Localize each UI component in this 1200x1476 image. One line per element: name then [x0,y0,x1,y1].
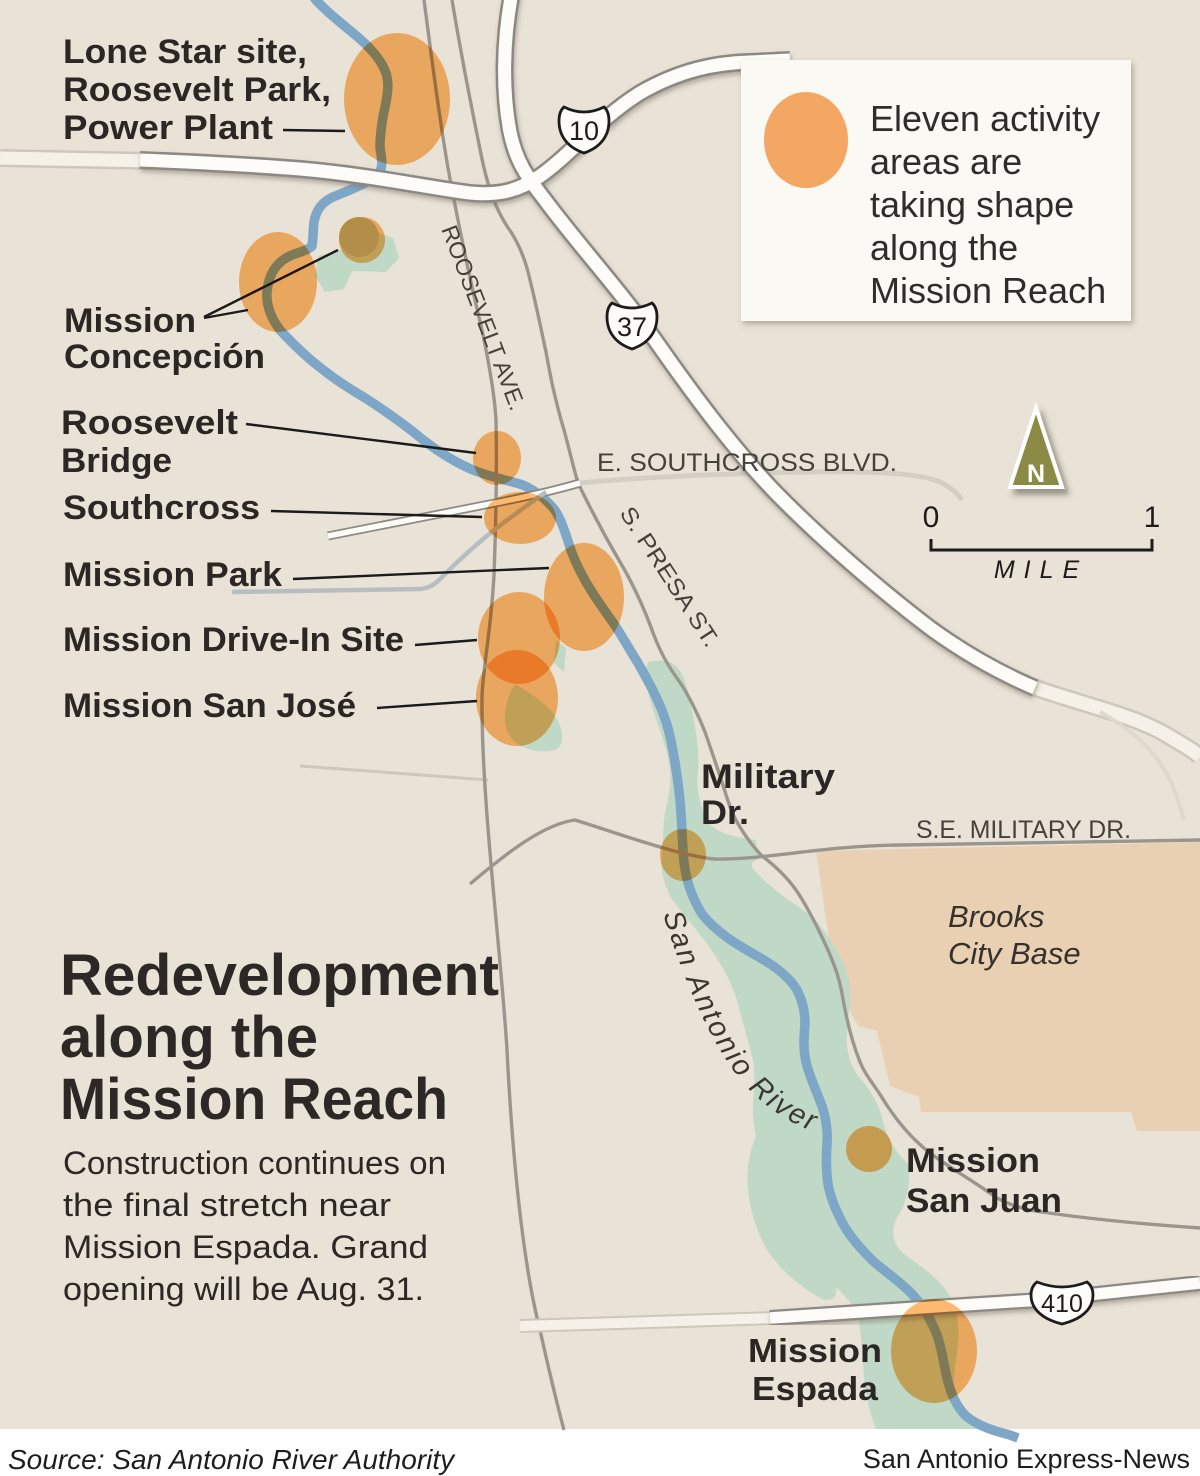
svg-text:MILE: MILE [994,556,1088,584]
svg-text:San Juan: San Juan [906,1182,1062,1220]
svg-text:San Antonio Express-News: San Antonio Express-News [863,1444,1190,1474]
svg-text:Roosevelt Park,: Roosevelt Park, [63,71,331,109]
svg-text:Mission Espada. Grand: Mission Espada. Grand [63,1229,428,1265]
svg-text:Mission San José: Mission San José [63,687,356,725]
svg-text:Eleven activity: Eleven activity [870,98,1100,139]
svg-text:Espada: Espada [752,1370,879,1407]
svg-text:Lone Star site,: Lone Star site, [63,33,307,71]
svg-text:Mission Drive-In Site: Mission Drive-In Site [63,621,404,659]
svg-text:Brooks: Brooks [948,899,1044,934]
svg-text:Military: Military [701,758,835,796]
svg-text:Bridge: Bridge [61,442,172,480]
svg-text:Mission: Mission [906,1142,1040,1180]
svg-text:410: 410 [1041,1290,1083,1318]
svg-text:S.E. MILITARY DR.: S.E. MILITARY DR. [916,816,1131,844]
svg-text:along the: along the [870,227,1018,268]
svg-text:opening will be Aug. 31.: opening will be Aug. 31. [63,1271,424,1307]
svg-text:Power Plant: Power Plant [63,109,273,147]
svg-text:Concepción: Concepción [64,338,265,376]
svg-text:Source: San Antonio River Auth: Source: San Antonio River Authority [8,1444,456,1475]
svg-text:Mission: Mission [64,302,196,340]
svg-text:N: N [1027,460,1045,488]
svg-text:Southcross: Southcross [63,489,260,527]
svg-text:Mission: Mission [748,1332,882,1369]
svg-text:Redevelopment: Redevelopment [60,943,499,1008]
svg-text:E. SOUTHCROSS BLVD.: E. SOUTHCROSS BLVD. [597,449,897,477]
svg-text:Mission Park: Mission Park [63,556,282,594]
svg-text:Construction continues on: Construction continues on [63,1145,446,1181]
svg-text:0: 0 [923,501,940,534]
svg-text:10: 10 [569,116,599,146]
svg-text:City Base: City Base [948,936,1081,971]
svg-text:Mission Reach: Mission Reach [870,270,1106,311]
svg-text:Dr.: Dr. [701,794,749,832]
svg-text:along the: along the [60,1005,318,1070]
svg-text:1: 1 [1144,501,1161,534]
svg-text:the final stretch near: the final stretch near [63,1187,391,1223]
svg-text:37: 37 [617,312,647,342]
svg-text:Roosevelt: Roosevelt [61,404,238,442]
svg-text:areas are: areas are [870,141,1022,182]
svg-text:taking shape: taking shape [870,184,1074,225]
svg-text:Mission Reach: Mission Reach [60,1067,448,1132]
